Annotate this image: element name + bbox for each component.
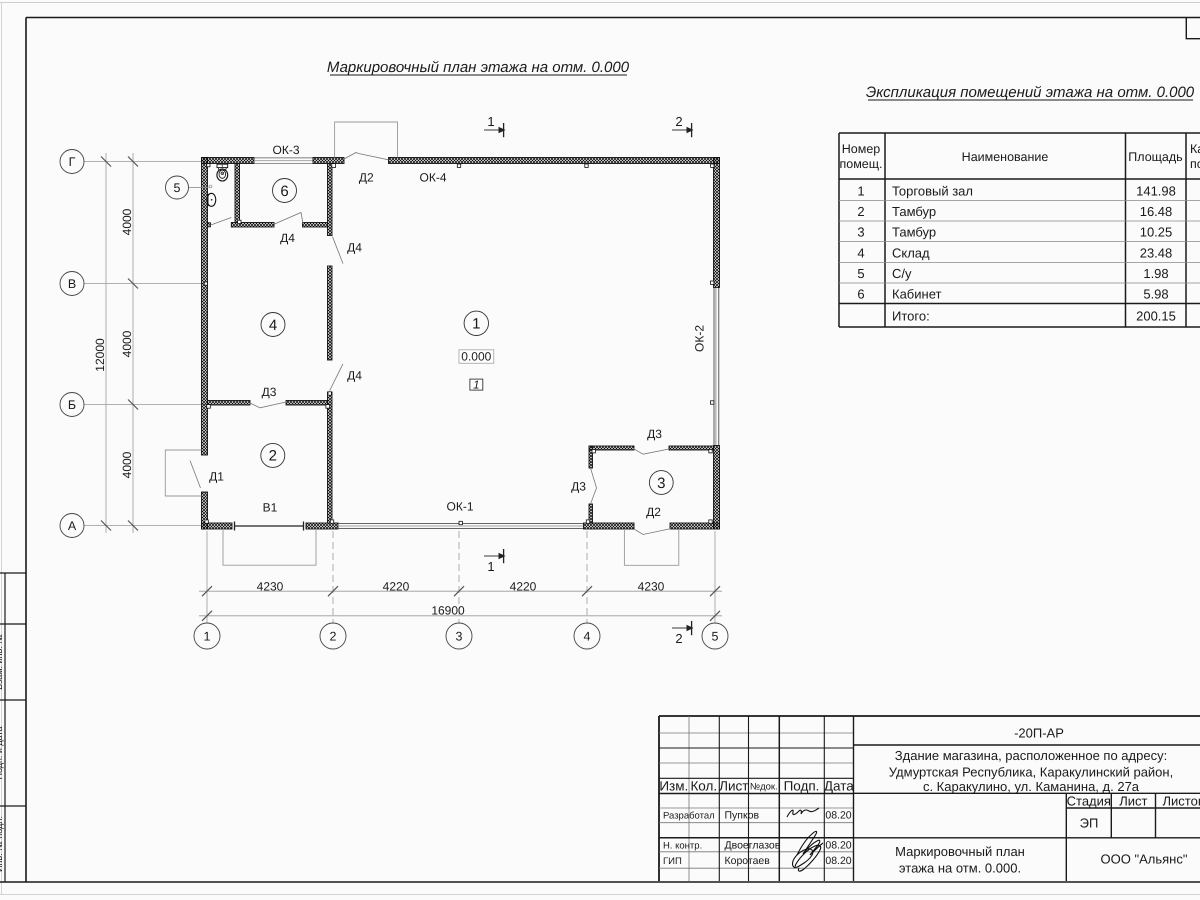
svg-text:Разработал: Разработал <box>663 811 715 822</box>
svg-text:№док.: №док. <box>750 782 778 793</box>
svg-text:Наименование: Наименование <box>962 150 1049 164</box>
svg-text:Г: Г <box>69 155 76 169</box>
svg-text:6: 6 <box>857 287 864 302</box>
svg-text:1: 1 <box>487 559 494 574</box>
svg-text:5: 5 <box>857 266 864 281</box>
svg-text:Двоеглазов: Двоеглазов <box>725 840 781 852</box>
svg-text:В1: В1 <box>263 501 278 515</box>
svg-text:12000: 12000 <box>93 338 107 372</box>
svg-text:В: В <box>68 277 76 291</box>
svg-text:ОК-2: ОК-2 <box>693 325 707 352</box>
svg-text:1: 1 <box>472 316 480 333</box>
svg-text:1: 1 <box>857 184 864 199</box>
svg-text:Подп.: Подп. <box>784 779 820 794</box>
svg-text:4230: 4230 <box>257 579 284 593</box>
svg-text:4000: 4000 <box>120 451 134 478</box>
svg-text:1: 1 <box>204 630 211 644</box>
svg-text:Листов: Листов <box>1163 794 1200 809</box>
svg-text:1: 1 <box>473 379 479 391</box>
svg-text:4: 4 <box>584 630 591 644</box>
svg-text:2: 2 <box>269 448 277 465</box>
svg-text:5.98: 5.98 <box>1143 287 1168 302</box>
svg-text:С/у: С/у <box>892 266 912 281</box>
svg-text:этажа на отм. 0.000.: этажа на отм. 0.000. <box>899 861 1021 876</box>
svg-text:Коротаев: Коротаев <box>725 855 771 867</box>
svg-text:-20П-АР: -20П-АР <box>1014 726 1064 741</box>
svg-text:Кабинет: Кабинет <box>892 287 941 302</box>
svg-text:Д2: Д2 <box>646 505 661 519</box>
svg-text:4: 4 <box>857 246 864 261</box>
svg-text:1: 1 <box>487 114 494 129</box>
svg-text:08.20: 08.20 <box>825 810 851 822</box>
svg-text:3: 3 <box>456 630 463 644</box>
svg-text:Д4: Д4 <box>280 231 295 245</box>
svg-text:2: 2 <box>675 114 682 129</box>
svg-text:Торговый зал: Торговый зал <box>892 184 973 199</box>
svg-text:08.20: 08.20 <box>825 855 851 867</box>
svg-text:3: 3 <box>657 475 665 492</box>
svg-text:Категория: Категория <box>1190 142 1200 156</box>
svg-text:Д2: Д2 <box>359 171 374 185</box>
svg-text:Д4: Д4 <box>347 241 362 255</box>
svg-text:А: А <box>68 519 77 533</box>
svg-text:16900: 16900 <box>431 604 465 618</box>
svg-text:с. Каракулино, ул. Каманина, д: с. Каракулино, ул. Каманина, д. 27а <box>923 779 1140 794</box>
svg-text:Б: Б <box>68 398 76 412</box>
svg-text:4230: 4230 <box>638 579 665 593</box>
svg-text:Изм.: Изм. <box>659 779 688 794</box>
svg-text:4220: 4220 <box>383 579 410 593</box>
svg-text:Н. контр.: Н. контр. <box>663 841 702 852</box>
svg-text:ООО "Альянс": ООО "Альянс" <box>1101 852 1188 867</box>
svg-text:23.48: 23.48 <box>1140 246 1173 261</box>
svg-text:Площадь: Площадь <box>1128 150 1182 164</box>
svg-text:помещ.: помещ. <box>839 157 882 171</box>
svg-text:5: 5 <box>712 630 719 644</box>
svg-text:Лист: Лист <box>1119 794 1147 809</box>
svg-text:Инв. № подл.: Инв. № подл. <box>0 816 4 872</box>
svg-text:Удмуртская Республика, Каракул: Удмуртская Республика, Каракулинский рай… <box>889 765 1173 780</box>
svg-text:Экспликация помещений этажа на: Экспликация помещений этажа на отм. 0.00… <box>866 84 1195 101</box>
svg-text:4000: 4000 <box>120 208 134 235</box>
svg-text:Дата: Дата <box>824 779 854 794</box>
svg-text:Взам. инв. №: Взам. инв. № <box>0 634 4 690</box>
svg-text:Д3: Д3 <box>647 427 662 441</box>
svg-text:Маркировочный план: Маркировочный план <box>895 844 1025 859</box>
svg-text:ОК-1: ОК-1 <box>447 500 474 514</box>
svg-text:Кол.: Кол. <box>690 779 717 794</box>
svg-text:2: 2 <box>675 631 682 646</box>
svg-text:2: 2 <box>857 204 864 219</box>
svg-text:Тамбур: Тамбур <box>892 225 936 240</box>
svg-text:Стадия: Стадия <box>1067 794 1111 809</box>
svg-text:5: 5 <box>174 181 181 195</box>
svg-text:2: 2 <box>330 630 337 644</box>
svg-text:Д3: Д3 <box>571 480 586 494</box>
svg-text:Д1: Д1 <box>209 470 224 484</box>
svg-text:3: 3 <box>857 225 864 240</box>
svg-text:Д3: Д3 <box>262 385 277 399</box>
svg-text:16.48: 16.48 <box>1140 204 1173 219</box>
svg-text:Склад: Склад <box>892 246 930 261</box>
svg-text:Здание магазина, расположенное: Здание магазина, расположенное по адресу… <box>895 748 1167 763</box>
svg-text:Маркировочный план этажа на от: Маркировочный план этажа на отм. 0.000 <box>327 59 630 76</box>
svg-text:4: 4 <box>269 317 277 334</box>
svg-text:ГИП: ГИП <box>663 856 682 867</box>
svg-text:6: 6 <box>280 183 288 200</box>
svg-text:Лист: Лист <box>719 779 748 794</box>
svg-text:ОК-4: ОК-4 <box>420 171 447 185</box>
svg-text:200.15: 200.15 <box>1136 309 1176 324</box>
svg-text:Тамбур: Тамбур <box>892 204 936 219</box>
svg-text:Итого:: Итого: <box>892 309 930 324</box>
svg-text:Подп. и дата: Подп. и дата <box>0 726 4 779</box>
svg-text:0.000: 0.000 <box>461 349 491 363</box>
svg-text:ОК-3: ОК-3 <box>273 143 300 157</box>
svg-text:помещ.: помещ. <box>1190 157 1200 171</box>
svg-text:4220: 4220 <box>510 579 537 593</box>
svg-text:141.98: 141.98 <box>1136 184 1176 199</box>
svg-text:Пупков: Пупков <box>725 810 760 822</box>
svg-text:4000: 4000 <box>120 330 134 357</box>
svg-text:08.20: 08.20 <box>825 840 851 852</box>
svg-text:Номер: Номер <box>842 142 881 156</box>
svg-text:10.25: 10.25 <box>1140 225 1173 240</box>
svg-text:ЭП: ЭП <box>1080 816 1099 831</box>
svg-text:1.98: 1.98 <box>1143 266 1168 281</box>
svg-text:Д4: Д4 <box>347 369 362 383</box>
